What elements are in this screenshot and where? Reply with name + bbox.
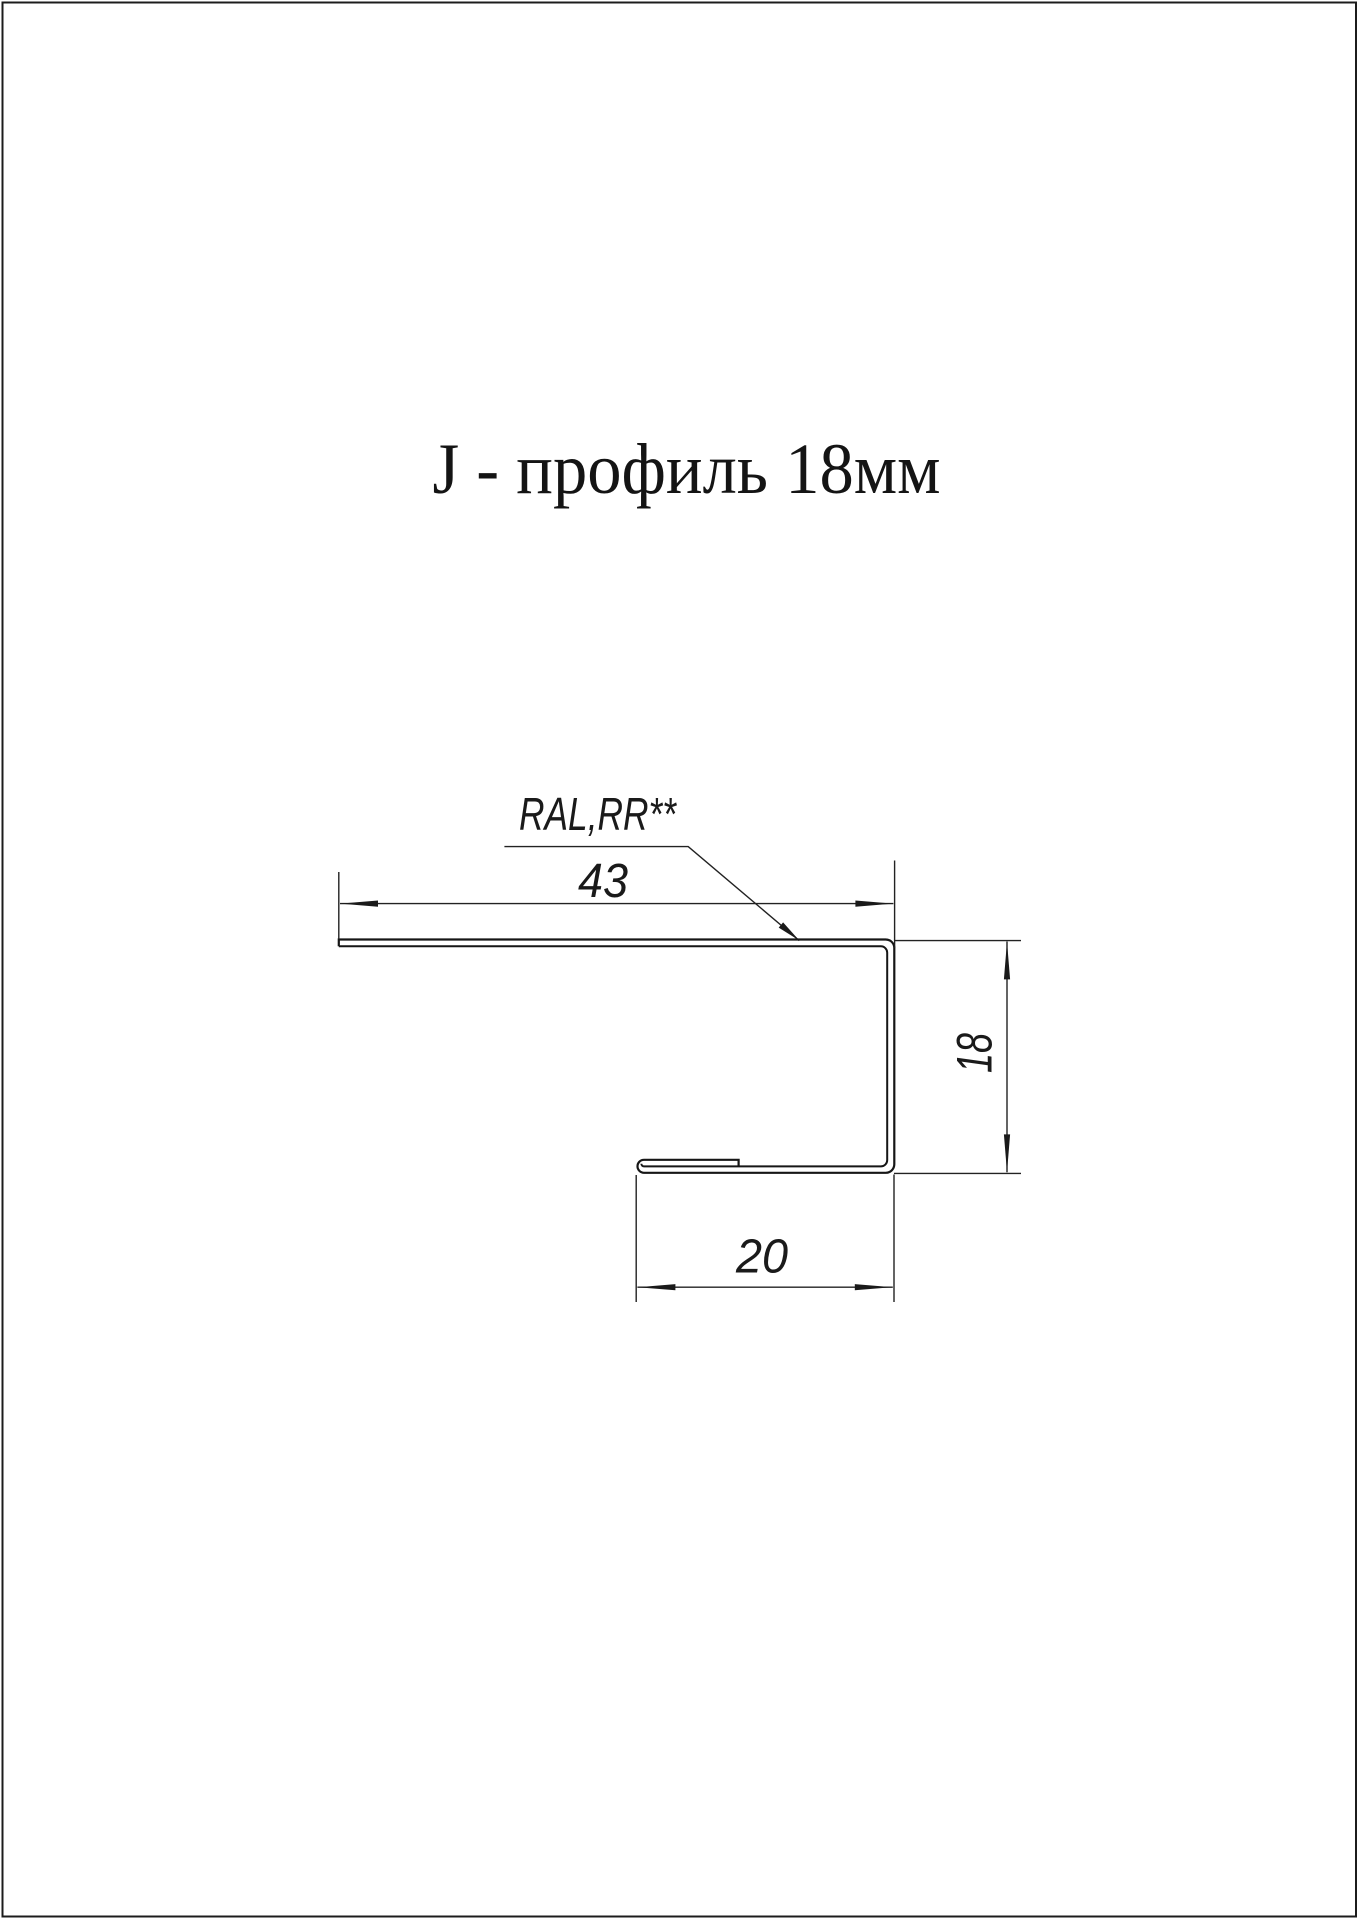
svg-text:RAL,RR**: RAL,RR** [519, 788, 678, 840]
svg-text:43: 43 [578, 855, 628, 908]
svg-text:20: 20 [735, 1230, 788, 1283]
svg-text:J - профиль 18мм: J - профиль 18мм [433, 429, 941, 509]
svg-text:18: 18 [947, 1033, 1003, 1073]
